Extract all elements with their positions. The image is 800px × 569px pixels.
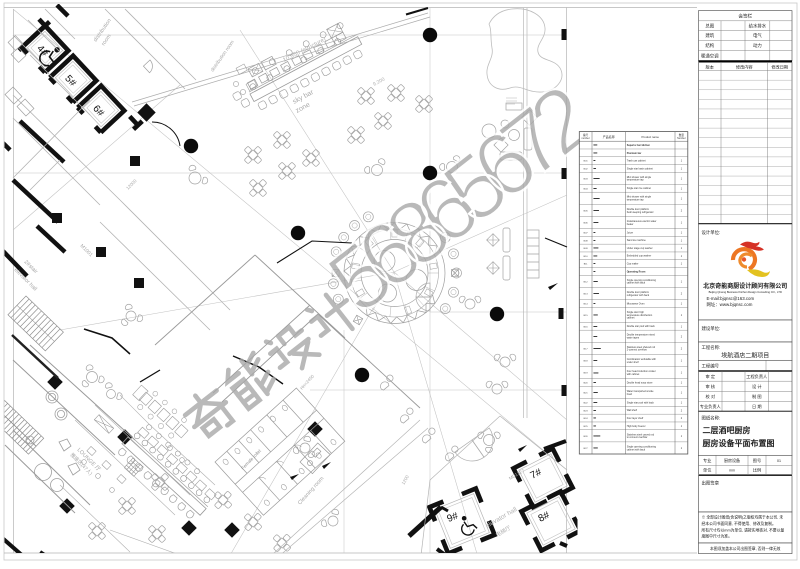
- svg-text:厨房设备: 厨房设备: [724, 457, 740, 463]
- svg-text:Single star pool with back: Single star pool with back: [627, 401, 655, 404]
- svg-text:temperature tap: temperature tap: [627, 199, 645, 202]
- svg-text:mm: mm: [729, 469, 735, 473]
- svg-text:▪▪▪▪: ▪▪▪▪: [593, 416, 596, 420]
- svg-text:给水排水: 给水排水: [749, 22, 767, 29]
- svg-text:▪▪▪▪▪▪: ▪▪▪▪▪▪: [593, 324, 597, 328]
- svg-text:▪▪▪▪: ▪▪▪▪: [593, 167, 596, 171]
- svg-text:※ 全部设计图纸(含说明)之版权均属于本公司, 未: ※ 全部设计图纸(含说明)之版权均属于本公司, 未: [702, 515, 784, 520]
- svg-text:工程编号: 工程编号: [702, 363, 720, 370]
- svg-text:▪▪▪▪▪▪: ▪▪▪▪▪▪: [593, 151, 597, 155]
- svg-text:Premium bar: Premium bar: [627, 152, 642, 155]
- svg-text:专业负责人: 专业负责人: [700, 403, 722, 410]
- svg-text:网址：www.bjqnsc.com: 网址：www.bjqnsc.com: [707, 301, 753, 308]
- svg-text:埃航酒店二期项目: 埃航酒店二期项目: [721, 352, 769, 360]
- svg-text:Microwave Oven: Microwave Oven: [627, 302, 645, 305]
- svg-text:number: number: [582, 137, 590, 140]
- svg-text:▪▪▪▪▪▪▪▪▪▪: ▪▪▪▪▪▪▪▪▪▪: [593, 177, 599, 181]
- svg-text:版本: 版本: [706, 64, 715, 71]
- svg-text:with cabinet: with cabinet: [627, 373, 640, 376]
- svg-text:▪▪▪▪: ▪▪▪▪: [593, 424, 596, 428]
- svg-text:Under stage cup washer: Under stage cup washer: [627, 247, 653, 250]
- svg-text:▪▪▪▪▪▪▪: ▪▪▪▪▪▪▪: [593, 391, 598, 395]
- svg-text:图纸名称:: 图纸名称:: [702, 415, 721, 422]
- svg-text:Double star pool with back: Double star pool with back: [627, 325, 656, 328]
- svg-text:总图: 总图: [705, 22, 714, 29]
- svg-text:动力: 动力: [753, 42, 762, 49]
- svg-text:fresh-keeping refrigerator: fresh-keeping refrigerator: [627, 211, 654, 214]
- svg-text:校 对: 校 对: [705, 393, 715, 400]
- svg-text:Embedded cup washer: Embedded cup washer: [627, 255, 652, 258]
- svg-text:Beijing Qineng Business Kitche: Beijing Qineng Business Kitchen Design C…: [709, 290, 782, 294]
- svg-text:▪▪▪▪: ▪▪▪▪: [593, 408, 596, 412]
- svg-text:▪▪▪▪▪▪▪▪: ▪▪▪▪▪▪▪▪: [593, 371, 598, 375]
- svg-text:Trash can cabinet: Trash can cabinet: [627, 160, 646, 163]
- svg-text:cabinet: cabinet: [627, 317, 635, 320]
- svg-text:▪▪▪▪▪▪: ▪▪▪▪▪▪: [593, 254, 597, 258]
- svg-text:单位: 单位: [703, 467, 711, 474]
- svg-text:▪▪▪▪▪▪: ▪▪▪▪▪▪: [593, 334, 597, 338]
- svg-text:修改日期: 修改日期: [771, 64, 788, 71]
- svg-text:Single star basin cabinet: Single star basin cabinet: [627, 167, 653, 170]
- svg-text:结构: 结构: [705, 42, 714, 49]
- svg-text:电气: 电气: [753, 32, 762, 38]
- svg-text:设计单位:: 设计单位:: [702, 229, 721, 236]
- svg-text:Product name: Product name: [641, 135, 659, 139]
- svg-text:temperature tap: temperature tap: [627, 179, 645, 182]
- svg-text:Cup maker: Cup maker: [627, 263, 639, 266]
- svg-text:二层酒吧厨房: 二层酒吧厨房: [703, 425, 751, 435]
- svg-text:Superior bar kitchen: Superior bar kitchen: [627, 144, 651, 147]
- svg-text:暖通空调: 暖通空调: [701, 53, 719, 60]
- svg-text:▪▪▪▪▪▪▪: ▪▪▪▪▪▪▪: [593, 280, 598, 284]
- svg-text:产品名称: 产品名称: [603, 134, 615, 139]
- svg-text:▪▪▪▪▪▪▪▪: ▪▪▪▪▪▪▪▪: [593, 221, 598, 225]
- svg-text:经本公司书面同意, 不得使用、修改及复制。: 经本公司书面同意, 不得使用、修改及复制。: [702, 521, 776, 526]
- svg-text:▪▪▪▪▪▪▪: ▪▪▪▪▪▪▪: [593, 313, 598, 317]
- svg-text:建筑: 建筑: [705, 32, 714, 39]
- svg-text:▪▪▪▪▪▪▪▪▪▪▪▪: ▪▪▪▪▪▪▪▪▪▪▪▪: [593, 347, 601, 351]
- svg-text:cabinet with back: cabinet with back: [627, 448, 646, 451]
- svg-text:01: 01: [777, 459, 781, 463]
- svg-text:refrigerator with back: refrigerator with back: [627, 294, 650, 297]
- svg-text:Sand ice machine: Sand ice machine: [627, 239, 647, 242]
- svg-text:▪▪▪▪▪▪▪▪▪: ▪▪▪▪▪▪▪▪▪: [593, 209, 599, 213]
- svg-text:专业: 专业: [703, 457, 711, 464]
- svg-text:High body freezer: High body freezer: [627, 425, 646, 428]
- svg-text:▪▪▪▪: ▪▪▪▪: [593, 381, 596, 385]
- svg-text:▪▪▪▪▪▪: ▪▪▪▪▪▪: [593, 359, 597, 363]
- svg-text:修改内容: 修改内容: [736, 64, 753, 71]
- svg-text:cabinet with back: cabinet with back: [627, 282, 646, 285]
- svg-text:Double head soup stove: Double head soup stove: [627, 382, 653, 385]
- svg-text:Single star rice cabinet: Single star rice cabinet: [627, 187, 652, 190]
- svg-text:Wall shelf: Wall shelf: [627, 409, 638, 412]
- svg-text:Operating Room: Operating Room: [627, 270, 646, 273]
- svg-text:度图中尺寸为准。: 度图中尺寸为准。: [702, 534, 732, 539]
- svg-text:water tapes: water tapes: [627, 337, 640, 340]
- svg-text:▪▪▪▪▪▪▪: ▪▪▪▪▪▪▪: [593, 446, 598, 450]
- svg-text:heater: heater: [627, 223, 634, 226]
- svg-text:▪▪▪▪▪▪: ▪▪▪▪▪▪: [593, 143, 597, 147]
- svg-text:审 定: 审 定: [705, 373, 715, 380]
- svg-text:会签栏: 会签栏: [738, 13, 752, 20]
- svg-text:审 核: 审 核: [705, 383, 715, 390]
- svg-text:本图须加盖本公司出图签章, 否则一律无效: 本图须加盖本公司出图签章, 否则一律无效: [710, 546, 781, 551]
- svg-text:▪▪▪▪▪▪▪▪: ▪▪▪▪▪▪▪▪: [593, 246, 598, 250]
- svg-text:厨房设备平面布置图: 厨房设备平面布置图: [703, 438, 775, 448]
- svg-text:设 计: 设 计: [752, 383, 762, 390]
- svg-text:▪▪▪▪▪▪▪▪▪: ▪▪▪▪▪▪▪▪▪: [593, 292, 599, 296]
- svg-text:出图签章: 出图签章: [702, 480, 720, 487]
- svg-text:制 图: 制 图: [752, 393, 762, 400]
- svg-text:Number: Number: [677, 137, 686, 140]
- svg-text:▪▪▪▪▪: ▪▪▪▪▪: [593, 186, 596, 190]
- svg-text:所有尺寸均以mm为单位, 请按实地核对, 不要以量: 所有尺寸均以mm为单位, 请按实地核对, 不要以量: [702, 527, 785, 532]
- svg-text:▪▪▪▪▪▪▪▪▪▪▪: ▪▪▪▪▪▪▪▪▪▪▪: [593, 434, 600, 438]
- svg-text:▪▪▪▪▪▪▪▪▪▪: ▪▪▪▪▪▪▪▪▪▪: [593, 196, 599, 200]
- svg-text:工程负责人: 工程负责人: [746, 373, 768, 380]
- svg-text:北京奇能商厨设计顾问有限公司: 北京奇能商厨设计顾问有限公司: [703, 282, 787, 290]
- svg-text:工程名称:: 工程名称:: [702, 344, 721, 351]
- svg-text:建设单位:: 建设单位:: [702, 325, 721, 332]
- svg-text:E-mail:bjqnsc@163.com: E-mail:bjqnsc@163.com: [707, 296, 755, 301]
- svg-text:Juicer: Juicer: [627, 231, 634, 234]
- svg-text:▪▪▪▪▪▪: ▪▪▪▪▪▪: [593, 401, 597, 405]
- svg-text:under shelf: under shelf: [627, 361, 639, 364]
- svg-text:2-connect overflow: 2-connect overflow: [627, 349, 647, 352]
- svg-text:Four layer shelf: Four layer shelf: [627, 417, 644, 420]
- svg-text:比例: 比例: [753, 467, 761, 474]
- svg-text:to connect overflow: to connect overflow: [627, 436, 648, 439]
- svg-text:hood: hood: [627, 393, 633, 396]
